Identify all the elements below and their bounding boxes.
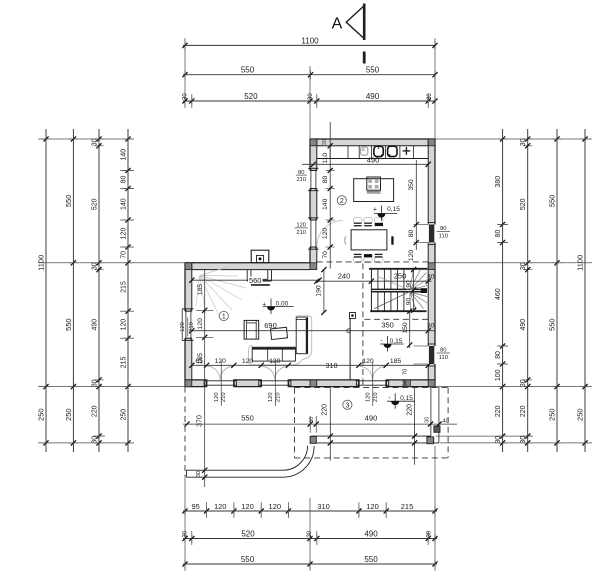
svg-text:190: 190 <box>316 285 323 297</box>
svg-text:520: 520 <box>91 198 98 210</box>
svg-text:80: 80 <box>495 351 502 359</box>
svg-text:560: 560 <box>249 276 262 285</box>
svg-text:70: 70 <box>120 251 127 259</box>
svg-text:520: 520 <box>520 198 527 210</box>
svg-text:0,00: 0,00 <box>276 301 289 308</box>
svg-text:120: 120 <box>408 250 415 262</box>
svg-text:30: 30 <box>91 436 98 444</box>
svg-text:185: 185 <box>197 353 204 365</box>
svg-text:30: 30 <box>520 262 527 270</box>
svg-text:120: 120 <box>365 392 371 402</box>
svg-text:490: 490 <box>366 92 380 101</box>
svg-text:120: 120 <box>268 392 274 402</box>
svg-text:30: 30 <box>427 323 435 330</box>
svg-text:+: + <box>262 301 266 308</box>
svg-text:690: 690 <box>264 321 277 330</box>
svg-text:30: 30 <box>183 530 189 537</box>
svg-text:140: 140 <box>120 149 127 161</box>
svg-text:80: 80 <box>408 230 415 238</box>
svg-text:120: 120 <box>242 358 254 365</box>
svg-text:550: 550 <box>64 318 73 331</box>
svg-text:30: 30 <box>308 93 314 100</box>
svg-text:30: 30 <box>426 530 432 537</box>
svg-text:0,15: 0,15 <box>400 395 413 402</box>
svg-text:80: 80 <box>120 176 127 184</box>
svg-text:30: 30 <box>520 379 527 387</box>
svg-text:210: 210 <box>296 177 306 183</box>
svg-text:120: 120 <box>120 228 127 240</box>
svg-text:95: 95 <box>192 502 200 511</box>
svg-text:550: 550 <box>547 318 556 331</box>
svg-text:40: 40 <box>442 418 448 424</box>
svg-text:215: 215 <box>401 502 414 511</box>
svg-text:215: 215 <box>120 356 127 368</box>
svg-text:215: 215 <box>120 281 127 293</box>
svg-text:2: 2 <box>340 198 344 205</box>
svg-text:140: 140 <box>322 198 329 210</box>
svg-text:110: 110 <box>439 355 448 361</box>
svg-text:120: 120 <box>215 358 227 365</box>
svg-text:3: 3 <box>345 402 349 409</box>
svg-text:220: 220 <box>495 405 502 417</box>
svg-text:550: 550 <box>241 414 254 423</box>
svg-text:220: 220 <box>520 405 527 417</box>
svg-text:310: 310 <box>317 502 330 511</box>
svg-text:120: 120 <box>366 502 379 511</box>
svg-text:30: 30 <box>495 436 502 444</box>
svg-text:550: 550 <box>366 66 380 75</box>
svg-text:30: 30 <box>425 417 431 423</box>
svg-text:250: 250 <box>120 409 127 421</box>
svg-text:30: 30 <box>91 379 98 387</box>
svg-text:120: 120 <box>269 502 282 511</box>
svg-text:A: A <box>332 16 343 33</box>
svg-text:120: 120 <box>362 358 374 365</box>
svg-text:350: 350 <box>408 179 415 191</box>
svg-text:120: 120 <box>269 358 281 365</box>
svg-text:210: 210 <box>373 392 379 402</box>
svg-text:30: 30 <box>91 138 98 146</box>
svg-text:490: 490 <box>367 156 380 165</box>
svg-text:350: 350 <box>381 321 394 330</box>
svg-text:310: 310 <box>326 361 338 370</box>
svg-text:120: 120 <box>241 502 254 511</box>
svg-text:30: 30 <box>183 93 189 100</box>
svg-text:250: 250 <box>36 408 45 421</box>
svg-text:120: 120 <box>214 502 227 511</box>
svg-text:220: 220 <box>321 404 328 416</box>
svg-text:30: 30 <box>427 93 433 100</box>
svg-text:1: 1 <box>222 314 226 321</box>
svg-text:185: 185 <box>390 358 402 365</box>
svg-text:250: 250 <box>64 408 73 421</box>
svg-text:490: 490 <box>364 530 378 539</box>
svg-text:30: 30 <box>322 139 328 145</box>
svg-text:380: 380 <box>495 176 502 188</box>
svg-text:520: 520 <box>241 530 255 539</box>
svg-text:520: 520 <box>244 92 258 101</box>
svg-text:120: 120 <box>322 228 329 240</box>
svg-text:220: 220 <box>406 404 413 416</box>
svg-text:30: 30 <box>520 436 527 444</box>
svg-text:70: 70 <box>402 369 408 375</box>
svg-text:140: 140 <box>120 198 127 210</box>
svg-text:240: 240 <box>338 272 351 281</box>
svg-text:550: 550 <box>547 195 556 208</box>
svg-text:550: 550 <box>241 555 255 564</box>
svg-text:80: 80 <box>322 176 329 184</box>
svg-text:120: 120 <box>180 322 186 332</box>
svg-text:490: 490 <box>520 319 527 331</box>
svg-text:30: 30 <box>402 380 408 386</box>
svg-text:+: + <box>373 207 377 214</box>
svg-text:210: 210 <box>296 230 306 236</box>
svg-text:90: 90 <box>406 280 413 288</box>
svg-text:220: 220 <box>91 405 98 417</box>
svg-text:120: 120 <box>120 319 127 331</box>
svg-text:100: 100 <box>495 369 502 381</box>
svg-text:110: 110 <box>439 234 448 240</box>
svg-text:250: 250 <box>394 272 407 281</box>
svg-text:550: 550 <box>241 66 255 75</box>
svg-text:550: 550 <box>64 195 73 208</box>
svg-text:30: 30 <box>427 274 435 281</box>
svg-text:370: 370 <box>197 415 204 427</box>
svg-text:250: 250 <box>575 408 584 421</box>
svg-text:250: 250 <box>547 408 556 421</box>
svg-text:30: 30 <box>520 138 527 146</box>
svg-text:0,15: 0,15 <box>390 338 403 345</box>
svg-text:210: 210 <box>189 322 195 332</box>
svg-text:1100: 1100 <box>301 36 319 45</box>
svg-text:550: 550 <box>364 555 378 564</box>
svg-text:110: 110 <box>322 153 329 164</box>
svg-text:90: 90 <box>406 298 413 306</box>
svg-text:30: 30 <box>309 417 315 423</box>
svg-text:210: 210 <box>276 392 282 402</box>
svg-text:80: 80 <box>495 230 502 238</box>
svg-text:30: 30 <box>307 530 313 537</box>
svg-text:490: 490 <box>91 319 98 331</box>
svg-text:120: 120 <box>197 318 204 330</box>
svg-text:460: 460 <box>495 288 502 300</box>
svg-text:150: 150 <box>402 322 409 334</box>
svg-text:70: 70 <box>322 251 329 259</box>
svg-text:490: 490 <box>365 414 378 423</box>
svg-text:120: 120 <box>214 392 220 402</box>
svg-text:30: 30 <box>196 471 202 477</box>
svg-text:30: 30 <box>91 262 98 270</box>
svg-text:185: 185 <box>197 284 204 296</box>
svg-text:210: 210 <box>221 392 227 402</box>
svg-text:0,15: 0,15 <box>387 206 400 213</box>
